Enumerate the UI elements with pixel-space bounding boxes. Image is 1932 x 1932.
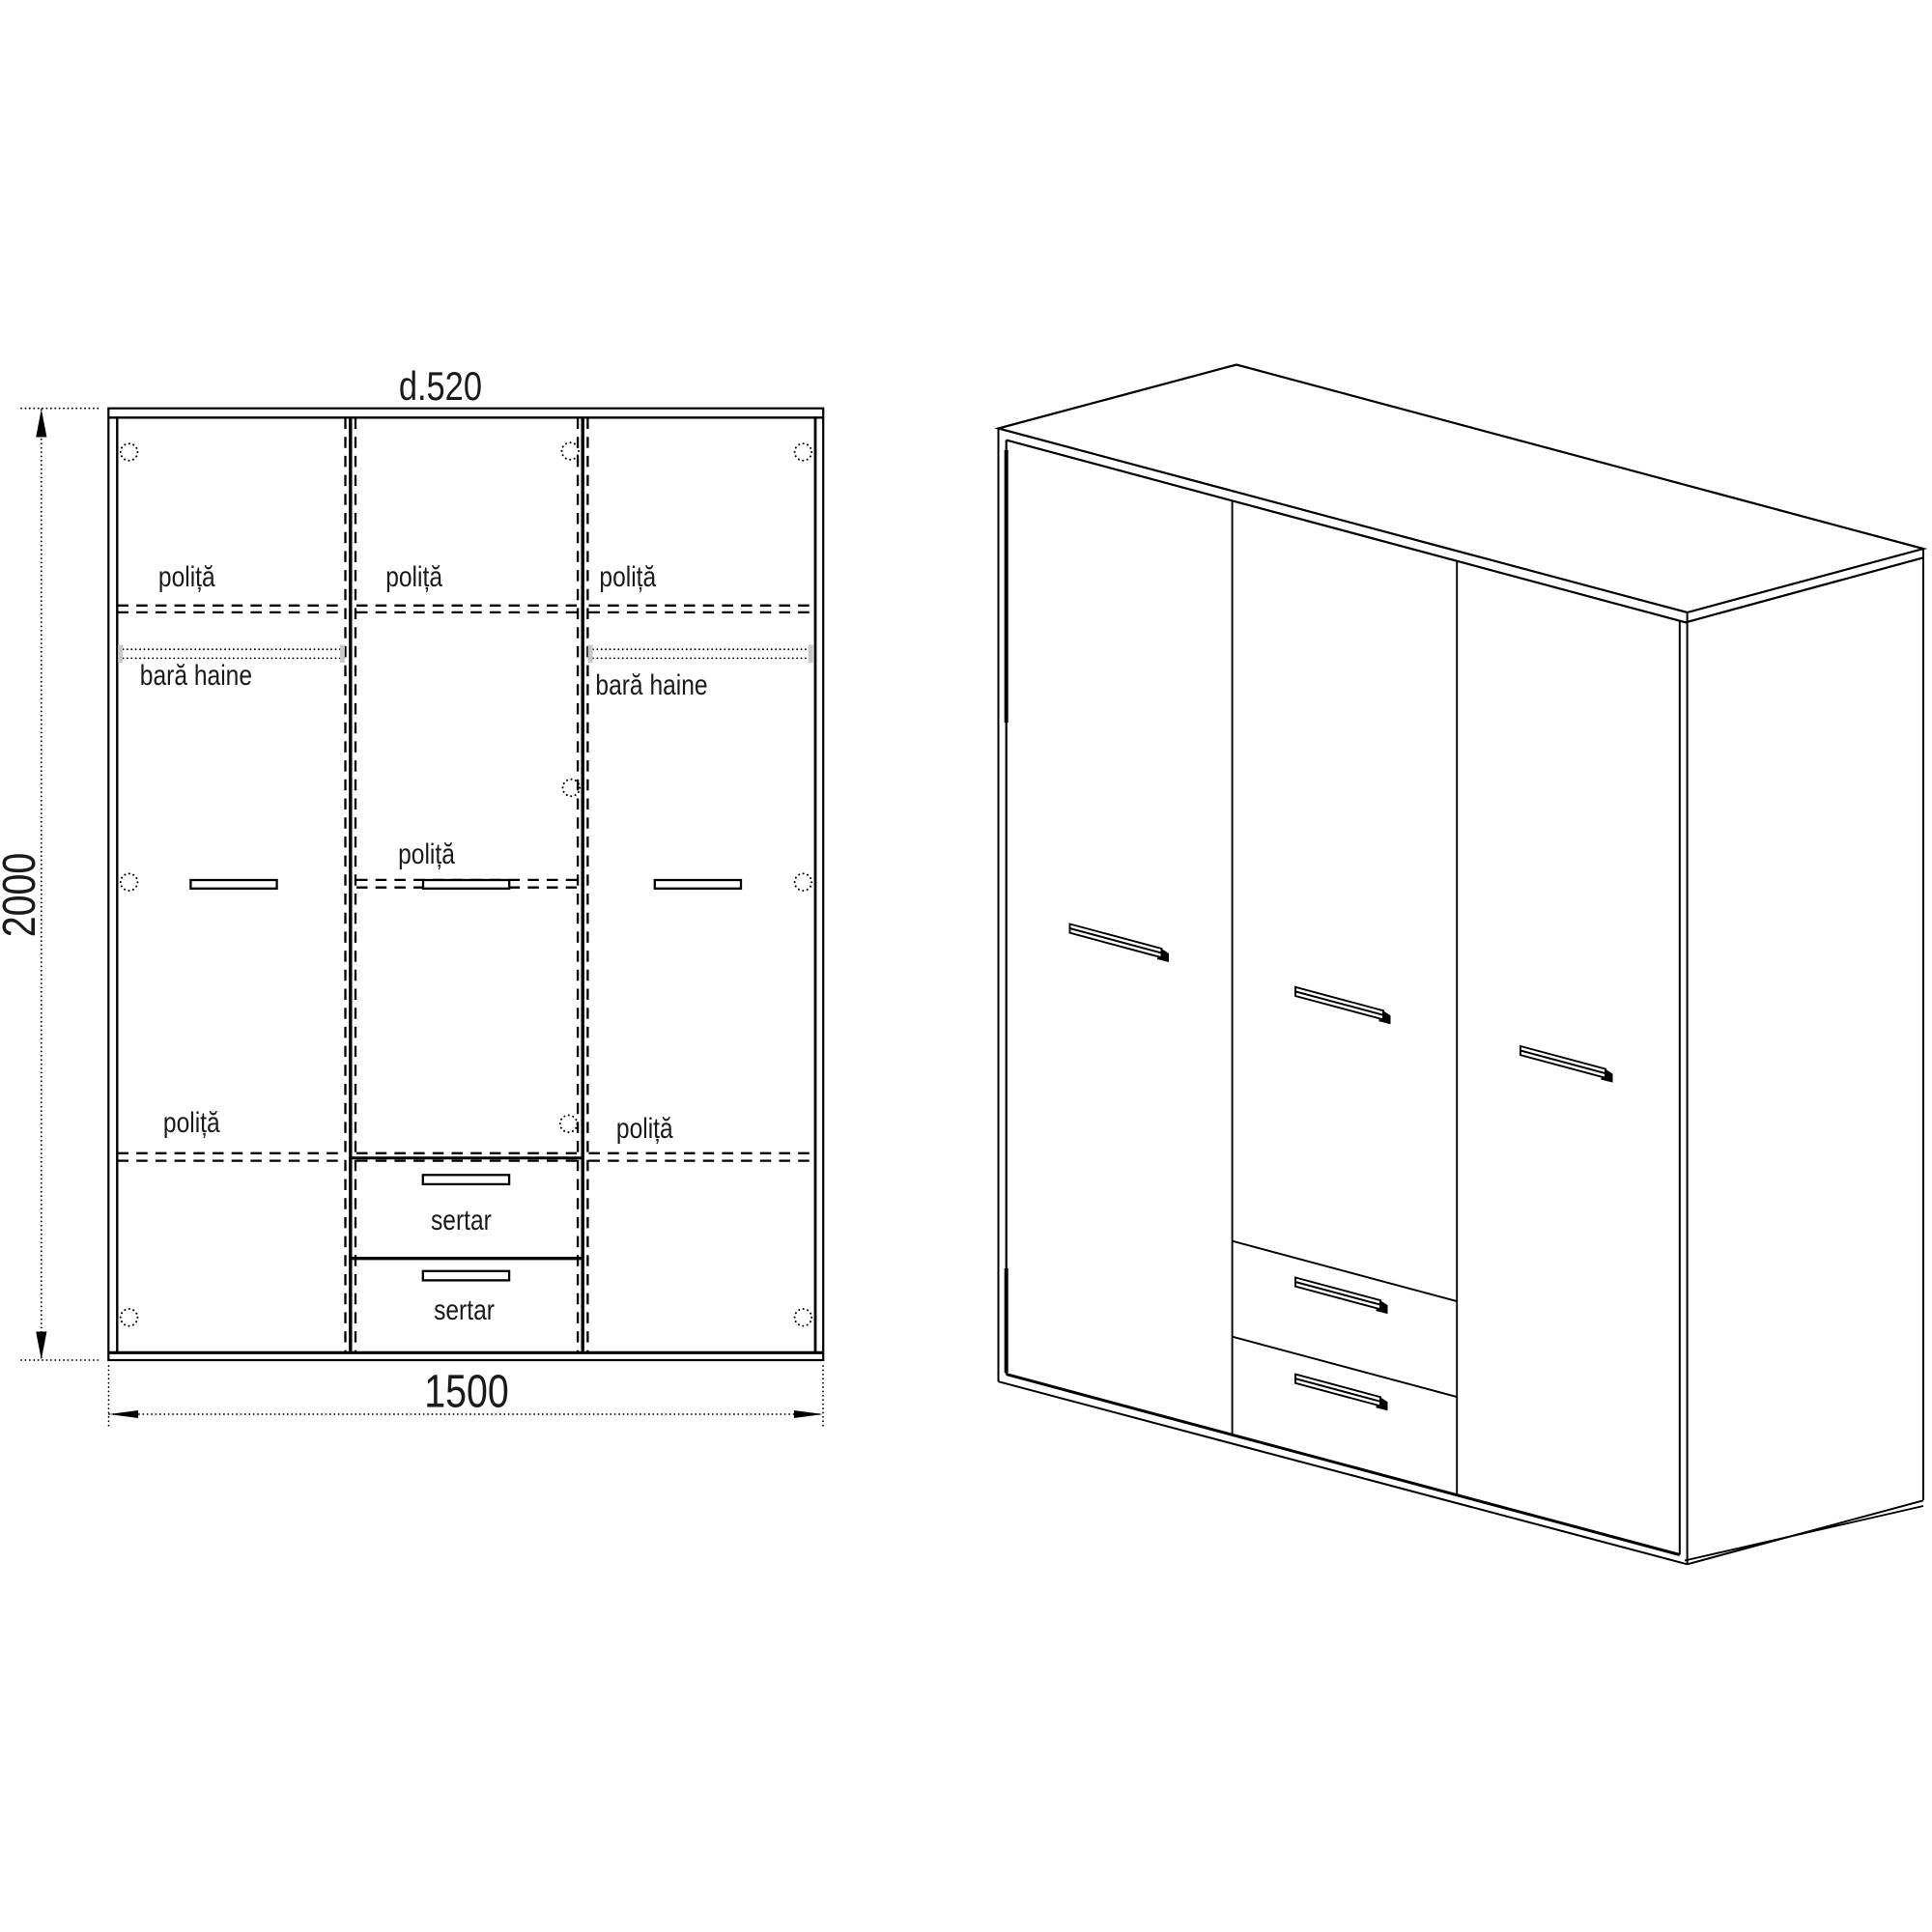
svg-text:poliță: poliță	[158, 560, 215, 593]
svg-text:2000: 2000	[0, 853, 45, 938]
svg-text:poliță: poliță	[616, 1112, 673, 1145]
svg-text:poliță: poliță	[599, 560, 656, 593]
svg-text:bară haine: bară haine	[595, 668, 707, 701]
svg-text:bară haine: bară haine	[140, 659, 252, 692]
svg-text:poliță: poliță	[398, 838, 455, 870]
svg-text:poliță: poliță	[385, 560, 442, 593]
svg-text:sertar: sertar	[431, 1204, 492, 1236]
svg-text:poliță: poliță	[163, 1106, 220, 1139]
svg-text:d.520: d.520	[399, 364, 482, 410]
svg-text:1500: 1500	[424, 1366, 509, 1418]
svg-text:sertar: sertar	[434, 1293, 495, 1326]
